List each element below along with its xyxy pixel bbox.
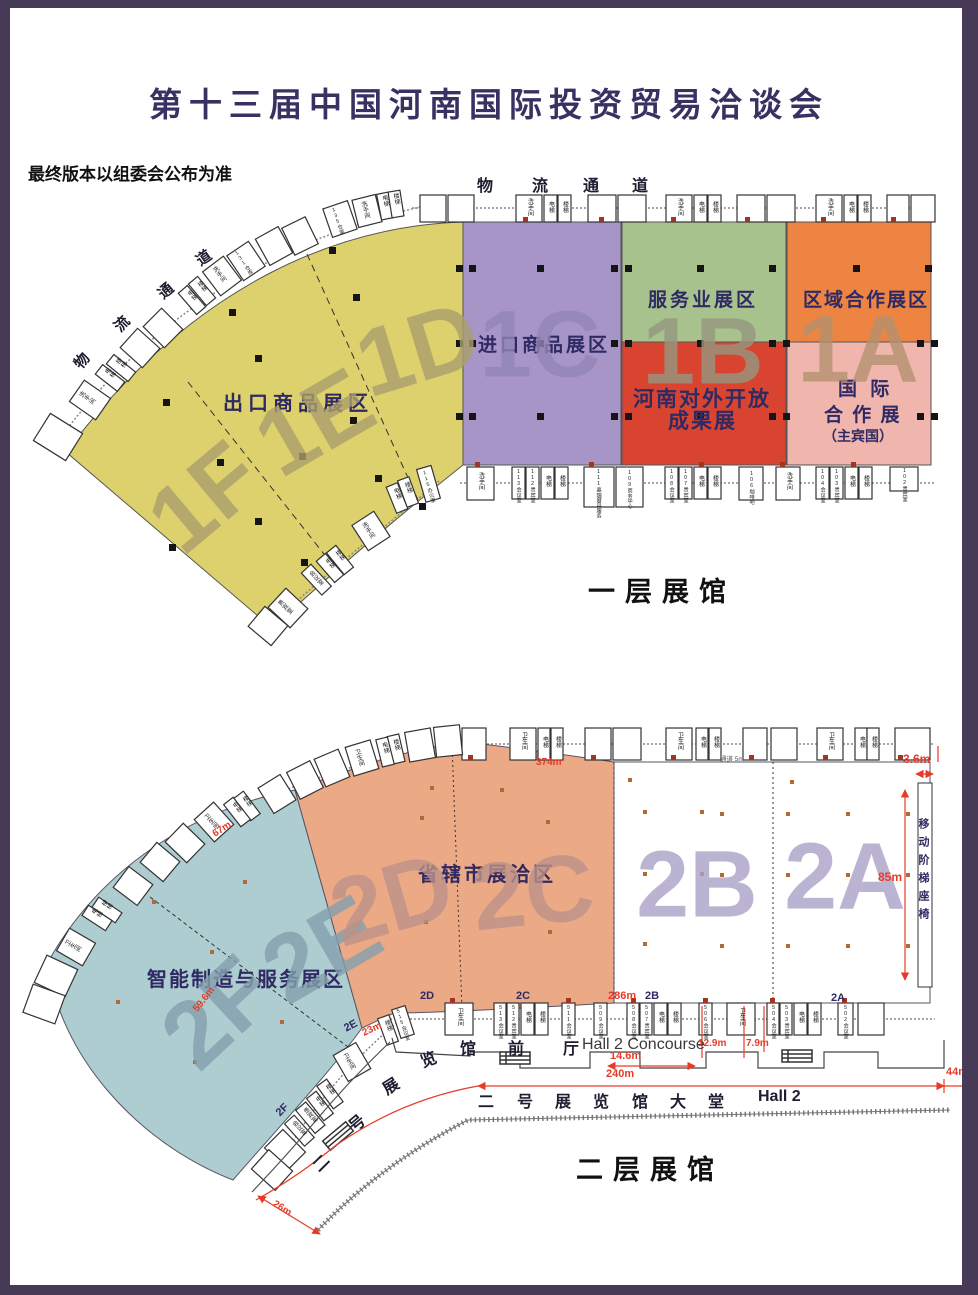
room-label: 电梯 <box>89 908 103 920</box>
logistics-char: 物 <box>477 172 493 196</box>
room-label: 洗手间 <box>676 198 683 216</box>
measure-23m: 23m <box>361 1020 384 1038</box>
room-label: 洗手间 <box>477 472 484 490</box>
room-label: 楼梯 <box>862 475 869 487</box>
page-title: 第十三届中国河南国际投资贸易洽谈会 <box>0 78 978 126</box>
room-label: 卫生间 <box>456 1008 463 1026</box>
concourse-curve-char: 览 <box>416 1044 439 1072</box>
room-label: 楼梯 <box>861 201 868 213</box>
text-overlay: 第十三届中国河南国际投资贸易洽谈会 最终版本以组委会公布为准 一层展馆 二层展馆… <box>0 0 978 1295</box>
measure-286m: 286m <box>608 990 636 1002</box>
room-label: 楼梯 <box>391 738 400 751</box>
room-label: 卫生间 <box>738 1008 745 1026</box>
room-label: 楼梯 <box>333 549 346 562</box>
room-label: 电梯 <box>391 487 402 501</box>
corridor-note: 通道 5m <box>720 753 744 763</box>
measure-7-9m: 7.9m <box>746 1038 769 1049</box>
room-label: 楼梯 <box>99 900 113 912</box>
edge-code-2c: 2C <box>516 990 530 1002</box>
edge-code-2b: 2B <box>645 990 659 1002</box>
zone-code-1c: 1C <box>479 298 600 393</box>
room-label: 楼梯 <box>711 475 718 487</box>
measure-12-9m: 12.9m <box>698 1038 726 1049</box>
zone-code-1a: 1A <box>797 303 918 398</box>
room-label: 洗手间 <box>210 266 226 284</box>
lobby-char: 堂 <box>708 1088 724 1112</box>
zone-label-intl-2: 合 作 展 <box>824 400 902 427</box>
room-label: 102贵宾室 <box>901 468 907 502</box>
zone-code-2c: 2C <box>468 839 599 946</box>
room-label: 洗手间 <box>826 198 833 216</box>
room-label: 卫生间 <box>202 813 219 831</box>
room-label: 电梯 <box>547 201 554 213</box>
room-label: 电梯 <box>699 736 706 748</box>
floorplan-poster: 第十三届中国河南国际投资贸易洽谈会 最终版本以组委会公布为准 一层展馆 二层展馆… <box>0 0 978 1295</box>
room-label: 楼梯 <box>671 1011 678 1023</box>
room-label: 111嘉瑞展具服务 <box>595 469 601 518</box>
room-label: 112贵宾室 <box>529 469 535 503</box>
zone-label-opening-2: 成果展 <box>668 405 737 435</box>
room-label: 会议室 <box>307 570 324 588</box>
room-label: 508会议室 <box>630 1005 636 1039</box>
logistics-char: 流 <box>532 172 548 196</box>
logistics-char: 流 <box>109 311 135 336</box>
logistics-char: 物 <box>69 348 95 373</box>
room-label: 楼梯 <box>554 736 561 748</box>
floor1-caption: 一层展馆 <box>588 570 736 609</box>
room-label: 电梯 <box>103 368 116 381</box>
concourse-curve-char: 二 <box>306 1148 334 1176</box>
room-label: 楼梯 <box>711 201 718 213</box>
room-label: 电梯 <box>847 201 854 213</box>
lobby-char: 展 <box>555 1088 571 1112</box>
room-label: 电梯 <box>380 194 389 207</box>
room-label: 洗手间 <box>77 391 95 407</box>
room-label: 洗手间 <box>526 198 533 216</box>
room-label: 109商务中心 <box>626 470 632 509</box>
mobile-seating-label: 移动阶梯座椅 <box>915 818 931 978</box>
room-label: 电梯 <box>185 289 198 302</box>
room-label: 电梯 <box>797 1011 804 1023</box>
logistics-char: 通 <box>153 278 178 304</box>
room-label: 115办公室 <box>420 470 435 504</box>
zone-code-1b: 1B <box>642 305 763 400</box>
room-label: 洗手间 <box>360 522 375 541</box>
zone-label-intl-3: （主宾国） <box>823 426 893 446</box>
room-label: 515会议室 <box>394 1008 410 1042</box>
measure-240m: 240m <box>606 1068 634 1080</box>
room-label: 电梯 <box>313 1095 326 1108</box>
measure-3-6m: 3.6m <box>903 752 930 766</box>
room-label: 电梯 <box>380 741 389 754</box>
room-label: 楼梯 <box>712 736 719 748</box>
edge-code-2d: 2D <box>420 990 434 1002</box>
room-label: 楼梯 <box>402 481 412 494</box>
room-label: 电梯 <box>858 736 865 748</box>
room-label: 电梯 <box>541 736 548 748</box>
lobby-char: 馆 <box>632 1088 648 1112</box>
measure-44m: 44m <box>946 1066 968 1078</box>
room-label: 507贵宾室 <box>643 1005 649 1039</box>
room-label: 楼梯 <box>195 280 208 293</box>
room-label: 楼梯 <box>558 475 565 487</box>
room-label: 502会议室 <box>842 1005 848 1039</box>
room-label: 会议室 <box>290 1120 307 1138</box>
room-label: 电梯 <box>230 801 243 814</box>
measure-14-6m: 14.6m <box>610 1050 641 1062</box>
room-label: 贵宾室 <box>275 599 293 616</box>
edge-code-2a: 2A <box>831 992 845 1004</box>
lobby-char: 二 <box>478 1088 494 1112</box>
room-label: 楼梯 <box>240 795 252 808</box>
room-label: 楼梯 <box>114 358 127 371</box>
room-label: 506会议室 <box>702 1005 708 1039</box>
measure-374m: 374m <box>536 757 562 768</box>
room-label: 卫生间 <box>827 732 834 750</box>
room-label: 108会议室 <box>668 469 674 503</box>
room-label: 504会议室 <box>770 1005 776 1039</box>
room-label: 513会议室 <box>497 1005 503 1039</box>
room-label: 电梯 <box>697 201 704 213</box>
room-label: 106咖啡吧 <box>748 471 754 505</box>
measure-26m: 26m <box>271 1199 294 1219</box>
room-label: 131仓库 <box>233 250 254 277</box>
room-label: 楼梯 <box>811 1011 818 1023</box>
lobby-char: 号 <box>517 1088 533 1112</box>
logistics-char: 道 <box>191 245 215 271</box>
room-label: 楼梯 <box>323 1083 335 1097</box>
zone-code-2b: 2B <box>636 838 757 933</box>
room-label: 104会议室 <box>819 469 825 503</box>
room-label: 电梯 <box>524 1011 531 1023</box>
room-label: 电梯 <box>697 475 704 487</box>
room-label: 503贵宾室 <box>783 1005 789 1039</box>
room-label: 洗手间 <box>359 200 370 219</box>
zone-code-2d: 2D <box>321 838 464 963</box>
room-label: 113会议室 <box>515 469 521 503</box>
concourse-char: 馆 <box>460 1035 476 1059</box>
room-label: 楼梯 <box>391 193 399 206</box>
lobby-char: 大 <box>670 1088 686 1112</box>
room-label: 卫生间 <box>341 1053 356 1072</box>
room-label: 楼梯 <box>538 1011 545 1023</box>
edge-code-2f: 2F <box>274 1101 292 1119</box>
concourse-curve-char: 号 <box>342 1108 370 1137</box>
room-label: 卫生间 <box>353 748 364 767</box>
logistics-char: 道 <box>632 172 648 196</box>
room-label: 卫生间 <box>676 732 683 750</box>
edge-code-2e: 2E <box>342 1018 360 1035</box>
room-label: 512贵宾室 <box>510 1005 516 1039</box>
zone-code-1d: 1D <box>346 287 490 413</box>
room-label: 电梯 <box>657 1011 664 1023</box>
lobby-en: Hall 2 <box>758 1088 801 1106</box>
room-label: 楼梯 <box>382 1019 392 1032</box>
floor2-caption: 二层展馆 <box>576 1148 724 1187</box>
disclaimer: 最终版本以组委会公布为准 <box>28 160 232 185</box>
room-label: 511会议室 <box>565 1005 571 1039</box>
room-label: 洗手间 <box>785 472 792 490</box>
room-label: 贵宾室 <box>301 1107 318 1125</box>
zone-code-1f: 1F <box>132 426 278 570</box>
lobby-char: 览 <box>593 1088 609 1112</box>
room-label: 103贵宾室 <box>833 469 839 503</box>
room-label: 135仓库 <box>330 207 345 236</box>
room-label: 卫生间 <box>63 940 82 955</box>
logistics-char: 通 <box>583 172 599 196</box>
room-label: 卫生间 <box>520 732 527 750</box>
room-label: 楼梯 <box>870 736 877 748</box>
room-label: 107贵宾室 <box>682 469 688 503</box>
room-label: 楼梯 <box>561 201 568 213</box>
room-label: 电梯 <box>848 475 855 487</box>
measure-85m: 85m <box>878 870 902 884</box>
room-label: 电梯 <box>323 557 336 570</box>
room-label: 509会议室 <box>597 1005 603 1039</box>
room-label: 电梯 <box>544 475 551 487</box>
concourse-curve-char: 展 <box>377 1071 403 1100</box>
